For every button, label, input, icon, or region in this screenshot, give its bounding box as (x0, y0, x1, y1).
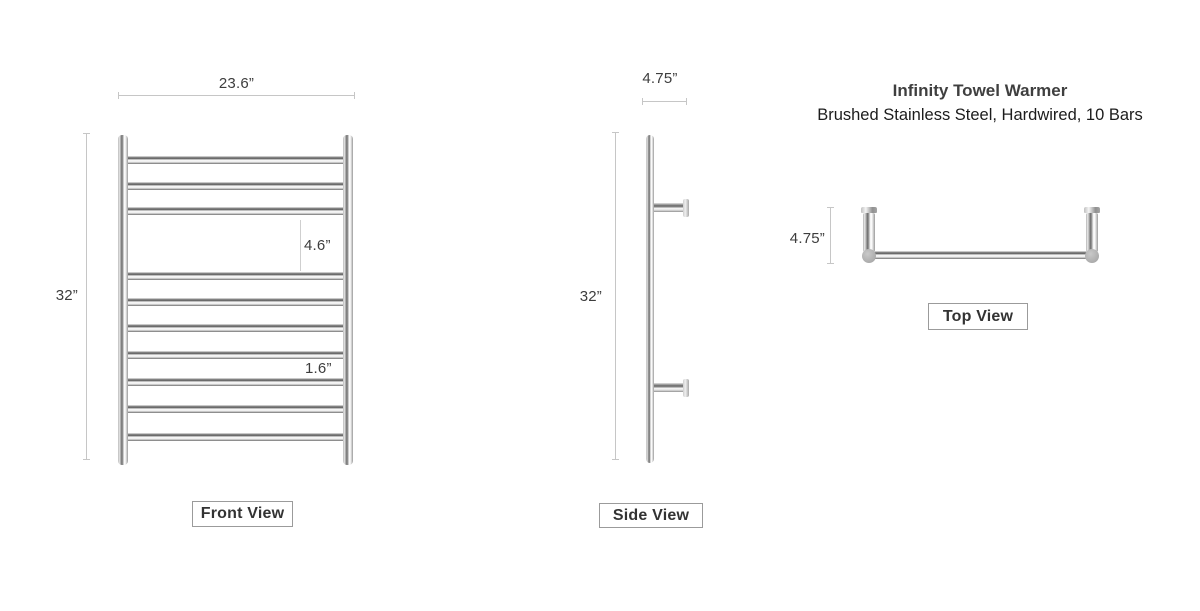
front-view-label: Front View (192, 501, 293, 527)
top-rail-bar (865, 251, 1097, 259)
top-depth-dim-line (830, 207, 831, 264)
side-top-bracket-stem (652, 203, 683, 212)
top-left-joint (862, 249, 876, 263)
top-depth-dim-label: 4.75” (770, 230, 825, 247)
side-view-label: Side View (599, 503, 703, 528)
side-depth-dim-label: 4.75” (620, 70, 700, 87)
diagram-canvas: 23.6” 32” 4.6” 1.6” Front View 4.75” 32 (0, 0, 1200, 611)
front-width-dim-line (118, 95, 355, 96)
towel-bar (123, 405, 349, 413)
side-top-bracket-flange (683, 199, 689, 217)
front-left-post (118, 135, 128, 465)
towel-bar (123, 351, 349, 359)
front-height-dim-label: 32” (40, 287, 78, 304)
top-right-joint (1085, 249, 1099, 263)
towel-bar (123, 272, 349, 280)
towel-bar (123, 324, 349, 332)
side-bottom-bracket-stem (652, 383, 683, 392)
towel-bar (123, 298, 349, 306)
side-height-dim-label: 32” (567, 288, 602, 305)
front-right-post (343, 135, 353, 465)
towel-bar (123, 156, 349, 164)
towel-bar (123, 207, 349, 215)
top-left-post (863, 213, 875, 252)
side-height-dim-line (615, 132, 616, 460)
side-post (646, 135, 654, 463)
product-title: Infinity Towel Warmer (780, 81, 1180, 101)
side-bottom-bracket-flange (683, 379, 689, 397)
side-depth-dim-line (642, 101, 687, 102)
towel-bar (123, 433, 349, 441)
front-width-dim-label: 23.6” (118, 75, 355, 92)
front-gap-dim-line (300, 220, 301, 271)
product-subtitle: Brushed Stainless Steel, Hardwired, 10 B… (780, 106, 1180, 125)
towel-bar (123, 182, 349, 190)
top-view-label: Top View (928, 303, 1028, 330)
front-bar-spacing-label: 1.6” (305, 360, 332, 377)
top-right-post (1086, 213, 1098, 252)
front-height-dim-line (86, 133, 87, 460)
front-gap-dim-label: 4.6” (304, 237, 331, 254)
towel-bar (123, 378, 349, 386)
